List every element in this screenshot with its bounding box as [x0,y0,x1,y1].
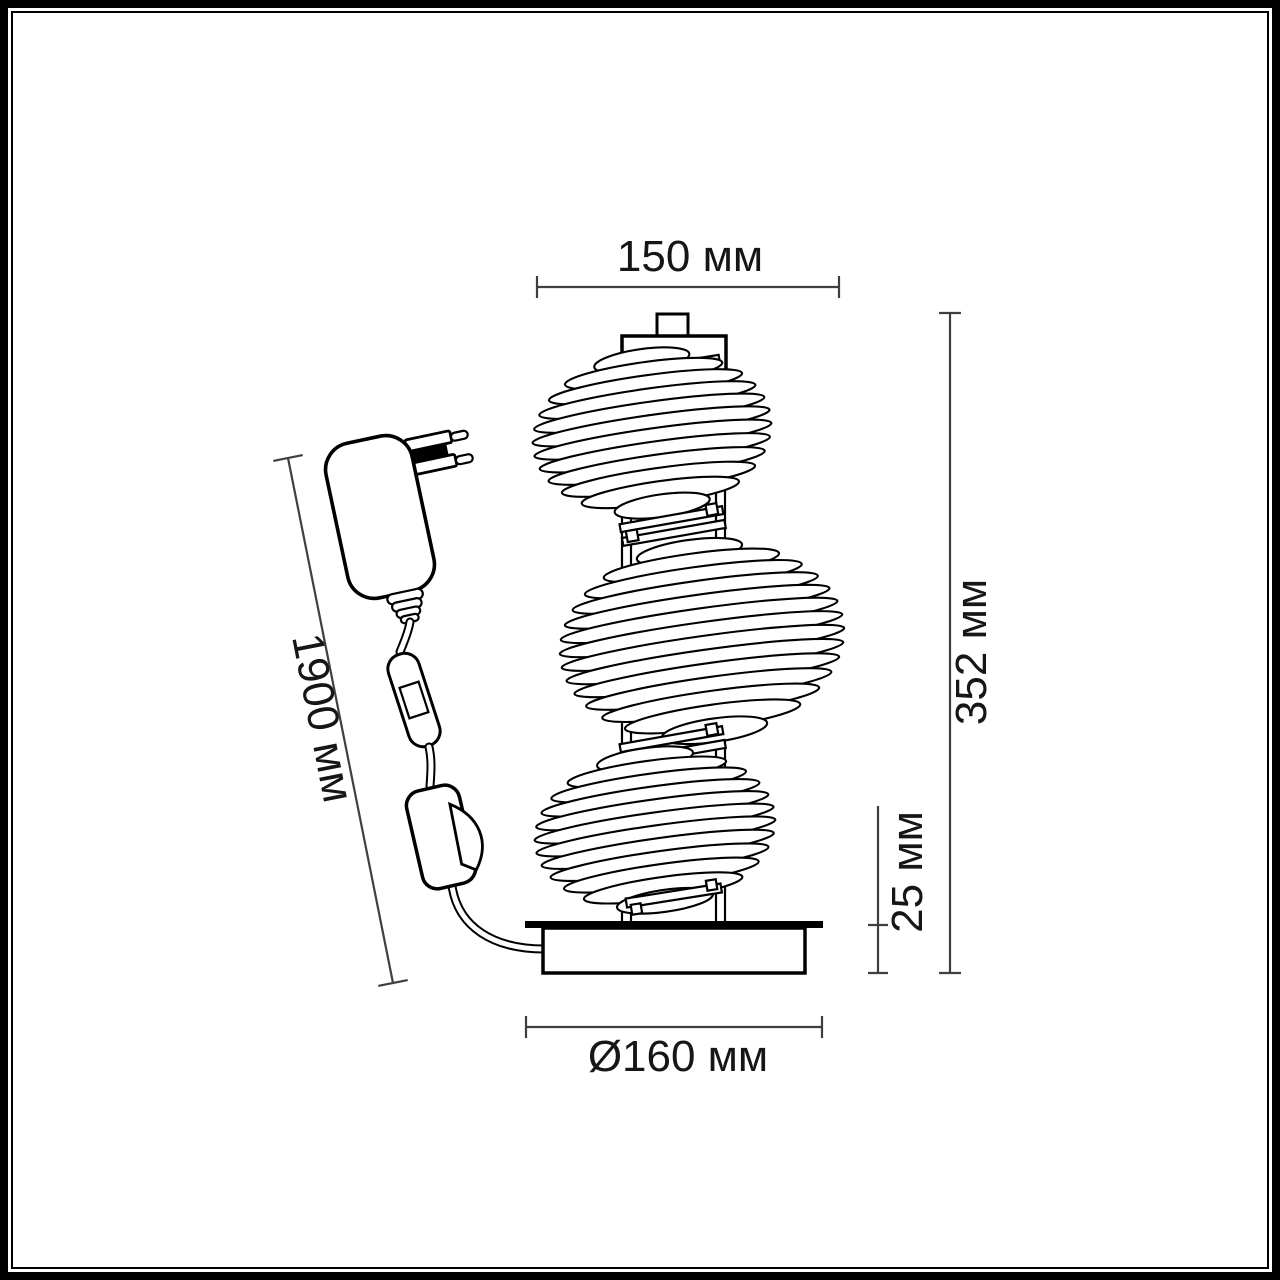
shade-top [522,333,782,534]
cable-upper [400,622,410,652]
power-adapter [321,418,504,632]
cable-connector [384,649,444,750]
power-cord [452,886,548,949]
inline-switch [403,779,490,891]
dimension-label-base-diameter: Ø160 мм [588,1032,768,1082]
shade-middle [547,520,858,762]
dimension-label-total-height: 352 мм [947,579,997,725]
lamp [522,314,858,928]
technical-drawing-page: 150 мм 352 мм 25 мм Ø160 мм 1900 мм [0,0,1280,1280]
dimension-label-base-height: 25 мм [883,811,933,933]
lamp-base [525,921,823,973]
dimension-label-top-width: 150 мм [617,232,763,282]
lamp-technical-drawing [0,0,1280,1280]
base-body [543,928,805,973]
cable-lower [429,747,431,786]
